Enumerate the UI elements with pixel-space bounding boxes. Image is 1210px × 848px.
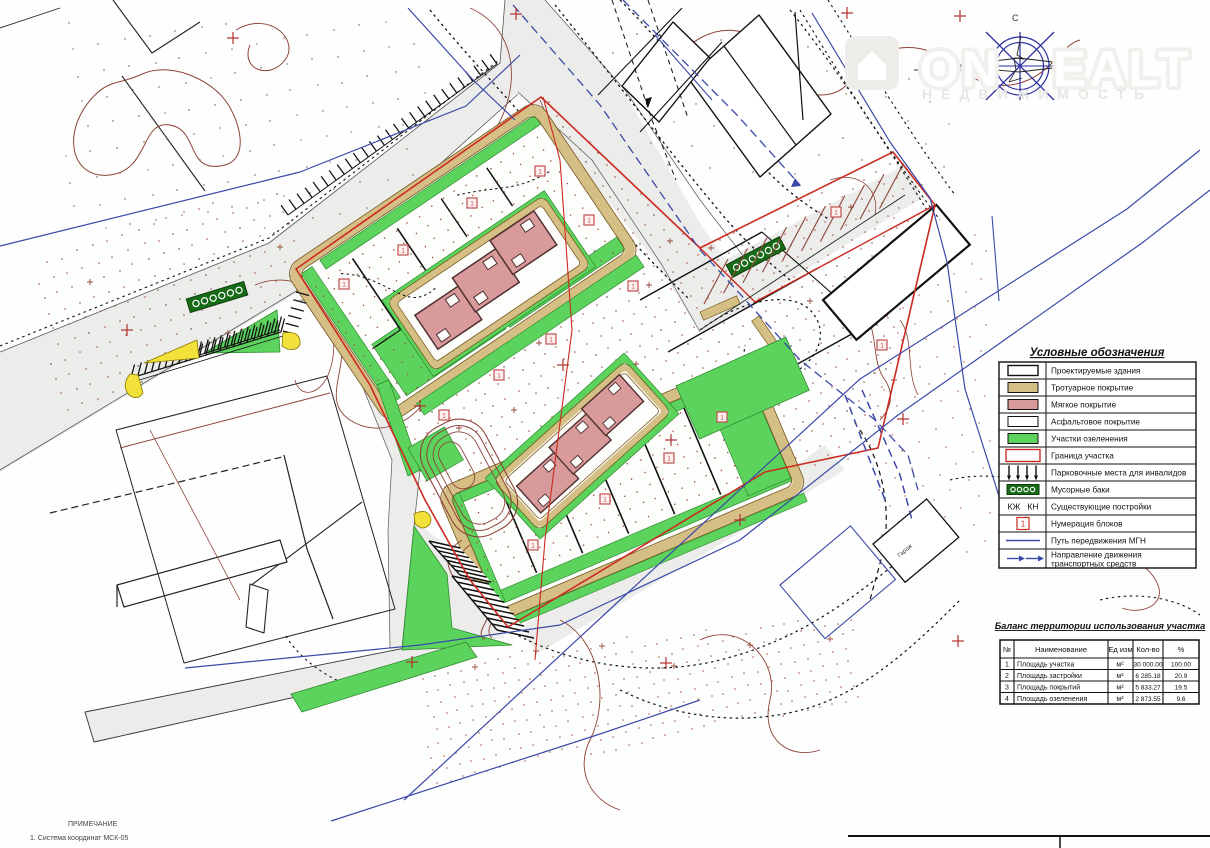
svg-text:1: 1 [470,201,474,208]
svg-text:20.9: 20.9 [1175,673,1188,680]
svg-text:Участки озеленения: Участки озеленения [1051,435,1128,444]
svg-text:1: 1 [401,248,405,255]
svg-text:1: 1 [834,210,838,217]
svg-text:%: % [1178,645,1185,654]
svg-text:2: 2 [1005,673,1009,680]
svg-text:транспортных средств: транспортных средств [1051,560,1136,569]
svg-text:1: 1 [342,282,346,289]
svg-text:Тротуарное покрытие: Тротуарное покрытие [1051,384,1134,393]
svg-text:Условные обозначения: Условные обозначения [1030,347,1165,359]
svg-text:1: 1 [442,413,446,420]
svg-text:Мягкое покрытие: Мягкое покрытие [1051,401,1117,410]
svg-text:1: 1 [538,169,542,176]
svg-text:м²: м² [1116,673,1124,680]
svg-text:1: 1 [603,497,607,504]
svg-text:м²: м² [1116,696,1124,703]
svg-text:Путь передвижения МГН: Путь передвижения МГН [1051,537,1146,546]
svg-text:1: 1 [667,456,671,463]
svg-text:Направление движения: Направление движения [1051,551,1142,560]
svg-text:Ед изм: Ед изм [1108,645,1132,654]
svg-text:2 873.55: 2 873.55 [1135,696,1161,703]
svg-text:1: 1 [720,415,724,422]
svg-text:1: 1 [531,543,535,550]
svg-text:Проектируемые здания: Проектируемые здания [1051,367,1140,376]
svg-text:С: С [1012,13,1019,23]
svg-text:Площадь участка: Площадь участка [1017,662,1074,669]
svg-text:9.6: 9.6 [1176,696,1185,703]
svg-text:№: № [1003,645,1011,654]
svg-text:Баланс территории использовани: Баланс территории использования участка [995,621,1206,631]
svg-text:1: 1 [880,343,884,350]
svg-text:м²: м² [1116,662,1124,669]
svg-text:4: 4 [1005,696,1009,703]
svg-text:Наименование: Наименование [1035,645,1087,654]
svg-text:КЖ КН: КЖ КН [1008,502,1039,512]
svg-text:Кол-во: Кол-во [1136,645,1159,654]
svg-text:30 000.00: 30 000.00 [1134,662,1163,669]
svg-text:1: 1 [549,337,553,344]
svg-text:м²: м² [1116,685,1124,692]
svg-text:Площадь озеленения: Площадь озеленения [1017,696,1088,703]
svg-text:100.00: 100.00 [1171,662,1191,669]
svg-text:6 285.18: 6 285.18 [1135,673,1161,680]
svg-text:1: 1 [587,218,591,225]
svg-text:Площадь покрытий: Площадь покрытий [1017,684,1080,692]
svg-text:Нумерация блоков: Нумерация блоков [1051,520,1123,529]
svg-text:19.5: 19.5 [1175,685,1188,692]
svg-text:НЕДВИЖИМОСТЬ: НЕДВИЖИМОСТЬ [922,86,1153,102]
svg-text:ПРИМЕЧАНИЕ: ПРИМЕЧАНИЕ [68,821,118,828]
svg-text:5 833.27: 5 833.27 [1135,685,1161,692]
svg-text:Площадь застройки: Площадь застройки [1017,672,1082,680]
svg-text:Граница участка: Граница участка [1051,452,1114,461]
svg-text:Парковочные места для инвалидо: Парковочные места для инвалидов [1051,469,1186,478]
svg-text:1: 1 [631,284,635,291]
svg-text:Существующие постройки: Существующие постройки [1051,503,1151,512]
svg-text:1: 1 [497,373,501,380]
svg-text:Асфальтовое покрытие: Асфальтовое покрытие [1051,418,1140,427]
svg-text:1: 1 [1005,662,1009,669]
svg-text:3: 3 [1005,685,1009,692]
svg-text:Мусорные баки: Мусорные баки [1051,486,1110,495]
svg-text:1. Система координат МСК-05: 1. Система координат МСК-05 [30,835,129,842]
svg-text:1: 1 [1021,520,1026,529]
